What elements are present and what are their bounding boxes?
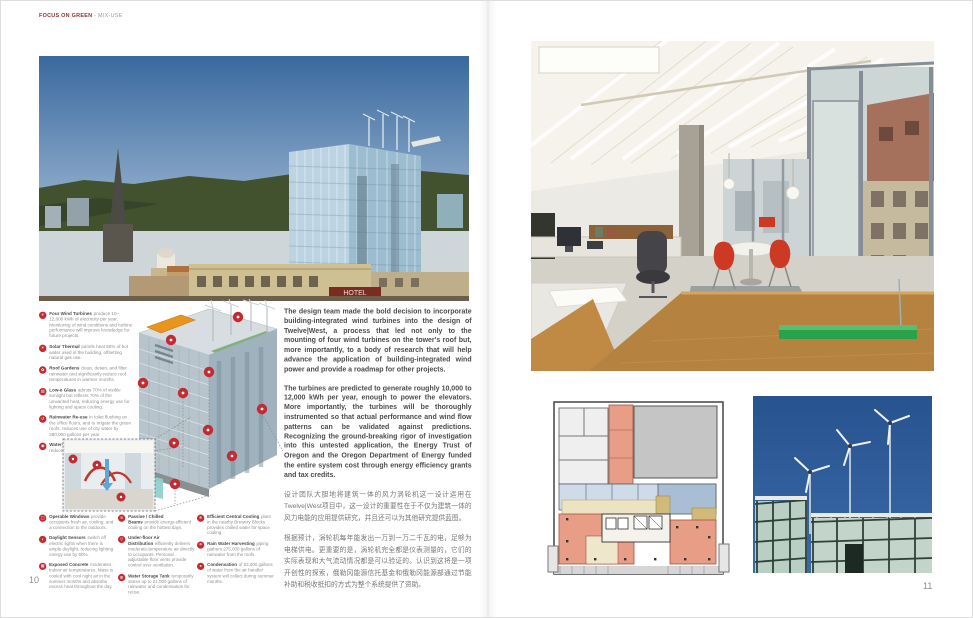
legend-text: Rain Water Harvestingpiping gathers 275,… [207,541,274,557]
legend-column-2: ≋ Passive / Chilled Beamsprovide energy-… [118,514,195,600]
legend-text: Passive / Chilled Beamsprovide energy-ef… [128,514,195,530]
turbines-illustration [753,396,932,573]
legend-item: ◍ Water Storage Tanktemporarily stores u… [118,573,195,595]
legend-item: ● Condensationof 53,000 gallons of water… [197,562,274,584]
distant-building [437,194,463,228]
stair-pod [548,546,558,572]
legend-item: ❄ Efficient Central Coolingplant in the … [197,514,274,536]
interior-inset [63,439,155,511]
rainwater-reuse-icon: ↺ [39,415,46,422]
article-body: The design team made the bold decision t… [284,307,472,600]
legend-text: Operable Windowsprovide occupants fresh … [49,514,116,530]
operable-window-icon: ▢ [39,515,46,522]
article-paragraph-en-1: The design team made the bold decision t… [284,307,472,375]
hotel-sign: HOTEL [329,287,381,297]
office-illustration [531,41,934,371]
doorway [845,544,863,573]
condensation-icon: ● [197,563,204,570]
skylight [539,47,659,73]
zone-salmon-strip [609,405,633,484]
solar-thermal-icon: ☀ [39,344,46,351]
legend-item: ☂ Rain Water Harvestingpiping gathers 27… [197,541,274,557]
hotel-sign-text: HOTEL [343,290,366,297]
plumbing-fixtures-icon: ◉ [39,443,46,450]
glass-structure-left [755,496,807,573]
chilled-beam-icon: ≋ [118,515,125,522]
page-number-left: 10 [29,575,39,585]
cupola-dome [158,248,174,258]
central-cooling-icon: ❄ [197,515,204,522]
roof-turbines-photo [753,396,932,573]
running-head-subsection: - MIX-USE [94,12,122,18]
office-interior-photo [531,41,934,371]
legend-column-3: ❄ Efficient Central Coolingplant in the … [197,514,274,589]
legend-item: ▢ Operable Windowsprovide occupants fres… [39,514,116,530]
red-chair-back [759,217,775,227]
hatched-band [554,566,723,574]
legend-text: Under-floor Air Distributionefficiently … [128,535,195,568]
legend-text: Water Storage Tanktemporarily stores up … [128,573,195,595]
church-base [103,224,133,262]
legend-column-1: ▢ Operable Windowsprovide occupants fres… [39,514,116,595]
zone-rooms-topleft [559,408,608,484]
exposed-concrete-icon: ▦ [39,563,46,570]
stair-pod [719,544,729,572]
legend-item: ◐ Daylight Sensorsswitch off electric li… [39,535,116,557]
low-e-glass-icon: ▤ [39,388,46,395]
skyline-photo: HOTEL [39,56,469,301]
underfloor-air-icon: ▽ [118,536,125,543]
article-paragraph-zh-2: 根据预计，涡轮机每年能发出一万到一万二千瓦的电，足够为电梯供电。更重要的是，涡轮… [284,533,472,591]
page-gutter [479,1,497,618]
page-number-right: 11 [923,581,932,591]
running-head: FOCUS ON GREEN - MIX-USE [39,12,123,18]
distant-building [67,198,89,226]
floor-plan-drawing [546,396,731,586]
daylight-sensor-icon: ◐ [39,536,46,543]
floor-plan [546,396,731,586]
zone-gray [634,406,717,478]
rain-harvest-icon: ☂ [197,541,204,548]
article-paragraph-en-2: The turbines are predicted to generate r… [284,384,472,481]
legend-item: ≋ Passive / Chilled Beamsprovide energy-… [118,514,195,530]
legend-item: ▦ Exposed Concretemoderates indoor air t… [39,562,116,589]
legend-item: ▽ Under-floor Air Distributionefficientl… [118,535,195,568]
water-storage-tank-icon: ◍ [118,574,125,581]
glass-structure-right [811,513,932,573]
building-systems-diagram [61,299,286,521]
magazine-spread: FOCUS ON GREEN - MIX-USE [0,0,973,618]
running-head-section: FOCUS ON GREEN [39,12,92,18]
legend-text: Daylight Sensorsswitch off electric ligh… [49,535,116,557]
legend-text: Exposed Concretemoderates indoor air tem… [49,562,116,589]
tower-axonometric [139,309,277,497]
legend-text: Efficient Central Coolingplant in the ne… [207,514,274,536]
article-paragraph-zh-1: 设计团队大胆地将建筑一体的风力涡轮机这一设计运用在Twelve|West项目中，… [284,489,472,524]
legend-text: Condensationof 53,000 gallons of water f… [207,562,274,584]
elevator-core [602,514,670,542]
distant-building [45,206,61,228]
wind-turbine-icon: ✳ [39,312,46,319]
skyline-illustration: HOTEL [39,56,469,301]
roof-garden-icon: ✿ [39,366,46,373]
